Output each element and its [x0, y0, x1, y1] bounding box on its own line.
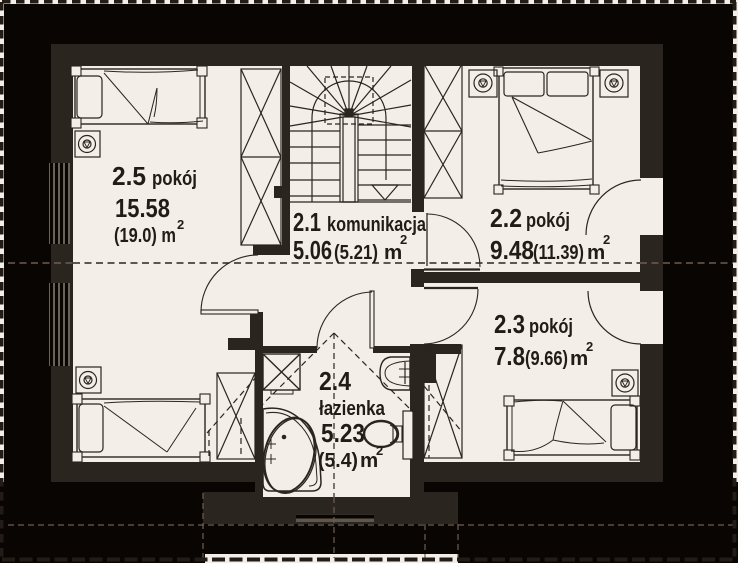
svg-text:2: 2 [586, 339, 593, 354]
svg-text:pokój: pokój [529, 315, 573, 338]
svg-text:15.58: 15.58 [115, 193, 170, 223]
svg-text:(5.4): (5.4) [318, 449, 358, 472]
svg-text:2: 2 [177, 217, 184, 232]
svg-text:(19.0) m: (19.0) m [114, 224, 176, 247]
svg-text:2.4: 2.4 [319, 366, 351, 396]
svg-text:2: 2 [376, 443, 383, 458]
svg-text:(5.21): (5.21) [334, 241, 378, 264]
svg-text:2.5: 2.5 [112, 161, 146, 191]
svg-text:(9.66): (9.66) [525, 347, 568, 370]
svg-text:2.1: 2.1 [293, 207, 321, 237]
svg-text:komunikacja: komunikacja [327, 213, 426, 236]
svg-text:(11.39): (11.39) [533, 241, 584, 264]
svg-text:pokój: pokój [152, 167, 197, 190]
svg-text:łazienka: łazienka [319, 397, 385, 420]
svg-text:pokój: pokój [526, 209, 570, 232]
svg-text:2.3: 2.3 [494, 309, 525, 339]
svg-text:5.06: 5.06 [293, 235, 332, 265]
svg-text:9.48: 9.48 [490, 235, 534, 265]
svg-text:2: 2 [400, 232, 407, 247]
svg-text:2.2: 2.2 [490, 203, 522, 233]
svg-text:5.23: 5.23 [321, 418, 365, 448]
svg-text:2: 2 [603, 232, 610, 247]
svg-text:7.8: 7.8 [494, 341, 525, 371]
